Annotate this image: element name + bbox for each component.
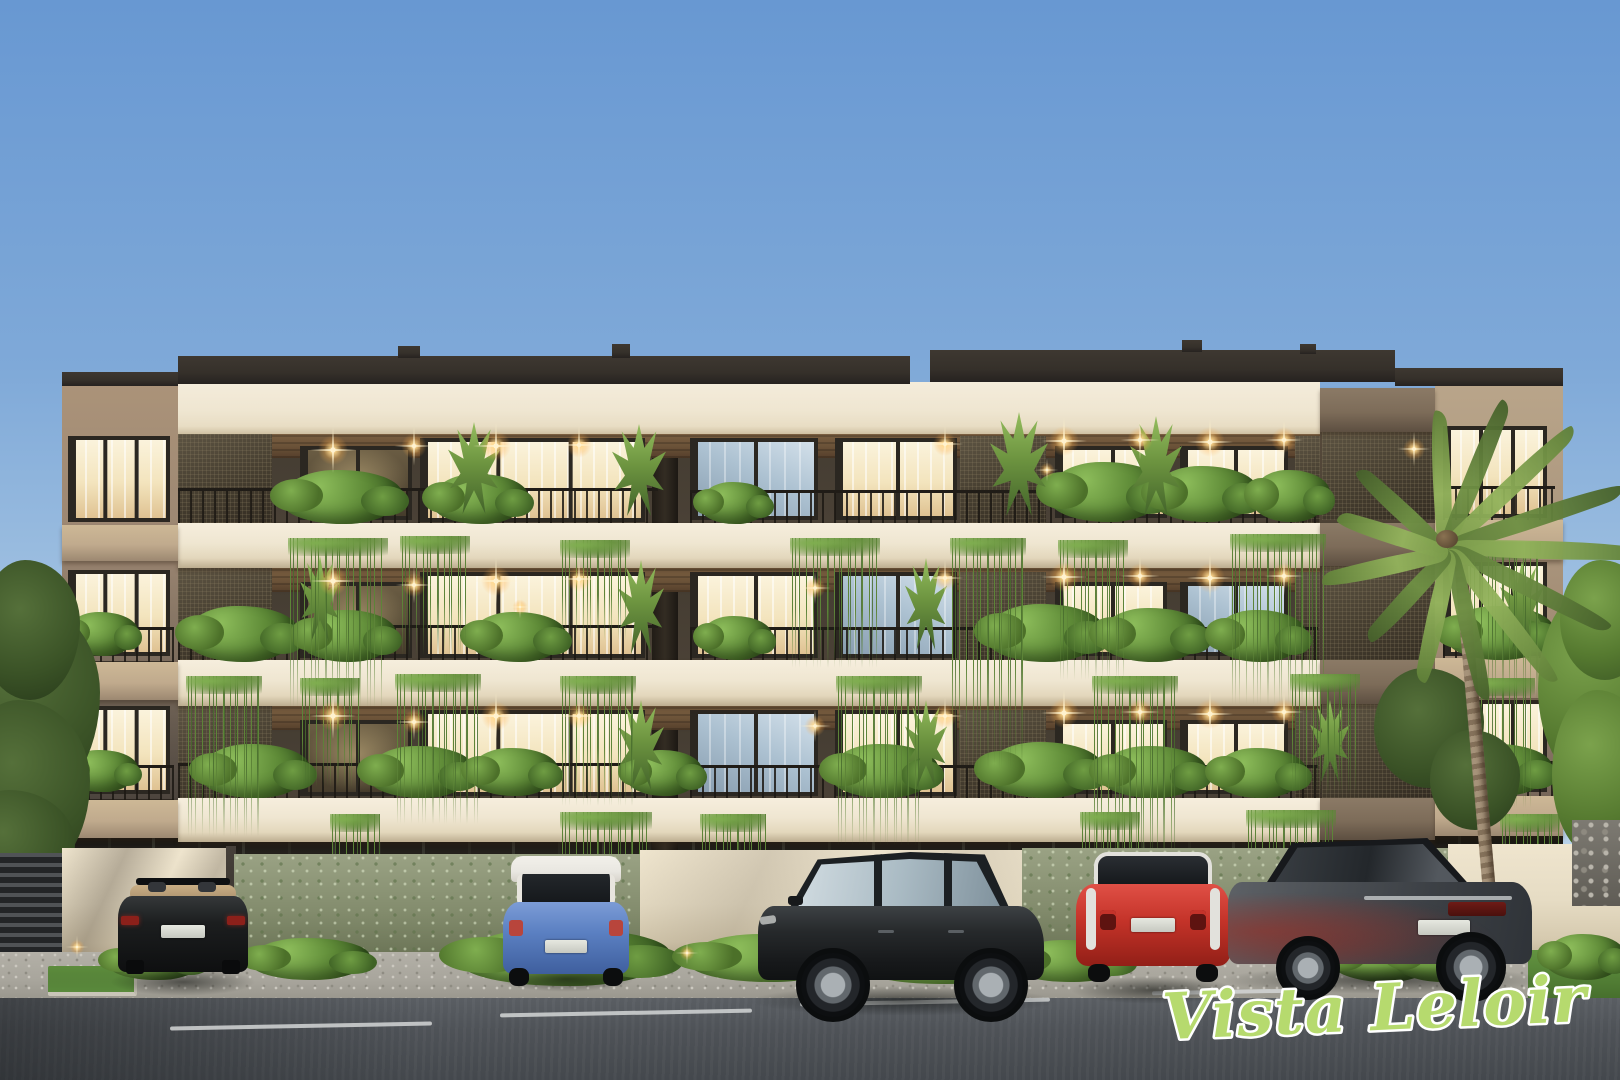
balcony-light bbox=[565, 565, 594, 594]
wall-light bbox=[69, 939, 86, 956]
balcony-light bbox=[1193, 425, 1227, 459]
balcony-light bbox=[931, 430, 958, 457]
balcony-light bbox=[931, 702, 958, 729]
balcony-light bbox=[479, 429, 513, 463]
hanging-vines bbox=[950, 538, 1026, 768]
balcony-light bbox=[1047, 696, 1081, 730]
roof-block bbox=[398, 346, 420, 358]
balcony-light bbox=[400, 708, 427, 735]
rear-wheel bbox=[222, 960, 240, 974]
balcony-light bbox=[1039, 462, 1056, 479]
balcony-railing bbox=[178, 488, 658, 526]
balcony-light bbox=[1193, 561, 1227, 595]
headrest bbox=[148, 882, 166, 892]
balcony-light bbox=[931, 564, 958, 591]
balcony-light bbox=[803, 576, 827, 600]
headrest bbox=[198, 882, 216, 892]
roof-block bbox=[1182, 340, 1202, 352]
balcony-light bbox=[1270, 426, 1299, 455]
balcony-plant bbox=[470, 612, 566, 662]
balcony-light bbox=[1401, 436, 1427, 462]
balcony-plant bbox=[282, 470, 402, 524]
hanging-vines bbox=[300, 678, 360, 788]
rear-wheel bbox=[509, 968, 529, 986]
slab-band-right-section bbox=[1320, 798, 1435, 840]
window-mullions bbox=[72, 440, 166, 518]
hanging-vines bbox=[186, 676, 262, 836]
balcony-light bbox=[1047, 424, 1081, 458]
taillight bbox=[609, 920, 623, 936]
balcony-plant bbox=[470, 748, 558, 796]
balcony-light bbox=[400, 432, 429, 461]
wall-shrub bbox=[250, 938, 370, 980]
balcony-light bbox=[316, 699, 350, 733]
roof-block bbox=[612, 344, 630, 358]
window-warm bbox=[68, 436, 170, 522]
balcony-light bbox=[479, 699, 513, 733]
taillight bbox=[1448, 902, 1506, 916]
hanging-vines bbox=[790, 538, 880, 668]
hanging-vines bbox=[1290, 674, 1360, 794]
tridion-bar bbox=[1086, 888, 1096, 950]
vista-leloir-render: Vista Leloir bbox=[0, 0, 1620, 1080]
balcony-light bbox=[400, 571, 427, 598]
suv-greenhouse bbox=[786, 852, 1012, 914]
slab-band-right-section bbox=[1320, 388, 1435, 432]
balcony-plant bbox=[700, 616, 772, 660]
roof-parapet bbox=[178, 356, 910, 384]
taillight bbox=[121, 916, 139, 925]
c-pillar bbox=[944, 852, 952, 914]
roof-parapet bbox=[1395, 368, 1563, 386]
hanging-vines bbox=[560, 676, 636, 806]
rear-wheel bbox=[126, 960, 144, 974]
balcony-plant bbox=[700, 482, 770, 524]
roof-parapet bbox=[62, 372, 178, 386]
taillight bbox=[1100, 910, 1116, 930]
balcony-plant bbox=[1252, 470, 1330, 522]
balcony-light bbox=[1047, 560, 1081, 594]
palm-coconuts bbox=[1436, 530, 1458, 548]
watermark-logo: Vista Leloir bbox=[1149, 934, 1600, 1079]
balcony-light bbox=[1126, 426, 1155, 455]
roof-parapet bbox=[930, 350, 1395, 382]
rear-wheel bbox=[954, 948, 1028, 1022]
rear-wheel bbox=[603, 968, 623, 986]
door-handle bbox=[948, 930, 964, 933]
car-dark-suv bbox=[758, 852, 1044, 1014]
slat-fence bbox=[0, 853, 64, 965]
balcony-light bbox=[1126, 698, 1155, 727]
balcony-light bbox=[803, 714, 827, 738]
license-plate bbox=[545, 940, 587, 953]
balcony-plant bbox=[186, 606, 298, 662]
balcony-light bbox=[1126, 562, 1155, 591]
car-dark-convertible bbox=[118, 870, 248, 995]
slab-band-left-wing bbox=[62, 525, 178, 561]
watermark-text: Vista Leloir bbox=[1161, 962, 1592, 1056]
wall-light bbox=[679, 945, 696, 962]
hanging-vines bbox=[395, 674, 481, 824]
balcony-light bbox=[1270, 562, 1299, 591]
car-blue-hatchback bbox=[503, 856, 629, 990]
balcony-light bbox=[1270, 698, 1299, 727]
balcony-light bbox=[565, 702, 594, 731]
balcony-light bbox=[316, 564, 350, 598]
front-wheel bbox=[796, 948, 870, 1022]
tridion-bar bbox=[1210, 888, 1220, 950]
hanging-vines bbox=[836, 676, 922, 846]
license-plate bbox=[1131, 918, 1175, 932]
taillight bbox=[1190, 910, 1206, 930]
license-plate bbox=[161, 925, 205, 938]
stone-gabion-corner bbox=[1572, 820, 1620, 906]
balcony-light bbox=[512, 599, 529, 616]
balcony-light bbox=[316, 433, 350, 467]
b-pillar bbox=[874, 852, 882, 914]
side-mirror bbox=[788, 896, 803, 905]
door-handle bbox=[878, 930, 894, 933]
car-body bbox=[503, 902, 629, 974]
balcony-light bbox=[565, 431, 594, 460]
glass-roof bbox=[1094, 852, 1212, 888]
taillight bbox=[509, 920, 523, 936]
roof-block bbox=[1300, 344, 1316, 354]
trunk-chrome bbox=[1364, 896, 1512, 900]
balcony-light bbox=[479, 564, 513, 598]
balcony-light bbox=[1193, 697, 1227, 731]
rear-wheel bbox=[1088, 964, 1110, 982]
taillight bbox=[227, 916, 245, 925]
